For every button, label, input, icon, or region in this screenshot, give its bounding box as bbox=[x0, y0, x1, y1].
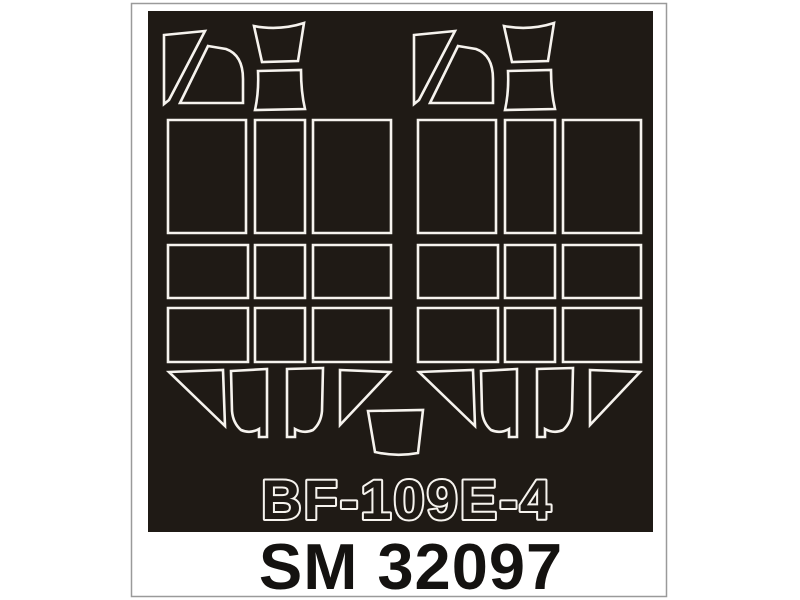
product-code-label: SM 32097 bbox=[259, 530, 563, 600]
plane-label: BF-109E-4 bbox=[261, 468, 553, 531]
product-photo-page: BF-109E-4 SM 32097 bbox=[0, 0, 800, 600]
product-photo: BF-109E-4 SM 32097 bbox=[0, 0, 800, 600]
